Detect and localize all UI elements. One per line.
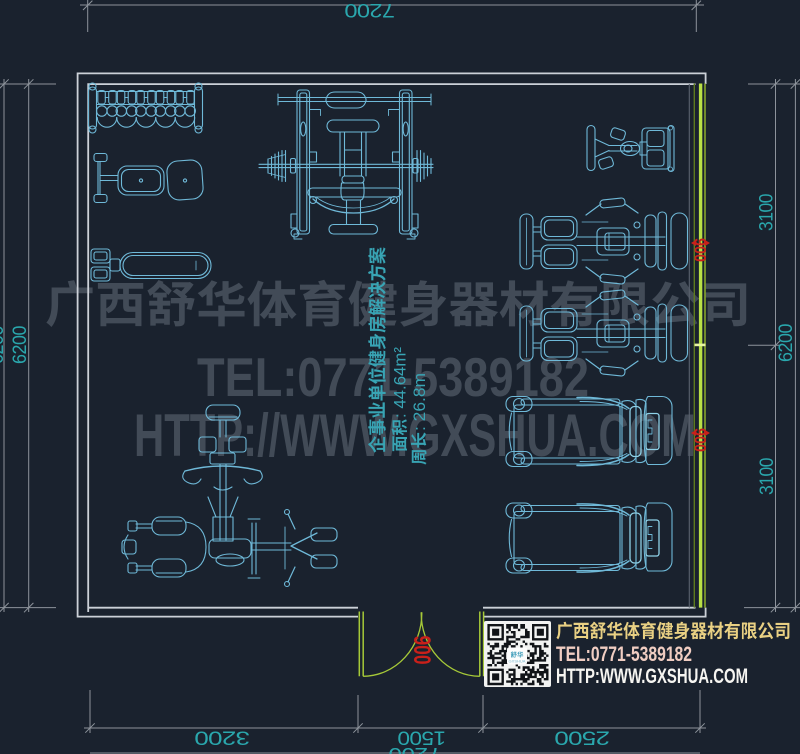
svg-text:3100: 3100 [757,194,778,231]
svg-text:7200: 7200 [345,0,395,20]
svg-text:6200: 6200 [776,324,797,362]
svg-text:: 26.8m: : 26.8m [411,373,429,431]
svg-text:TEL:0771-5389182: TEL:0771-5389182 [556,643,692,666]
svg-text:3100: 3100 [757,458,778,495]
svg-text:2500: 2500 [555,727,610,748]
svg-text:3200: 3200 [195,727,250,748]
svg-text:GXSHUA: GXSHUA [509,659,526,664]
svg-text:6200: 6200 [0,326,8,364]
svg-text:HTTP:WWW.GXSHUA.COM: HTTP:WWW.GXSHUA.COM [556,665,748,688]
svg-text:6200: 6200 [10,326,31,364]
svg-text:: 44.64m²: : 44.64m² [392,346,410,418]
svg-text:7200: 7200 [389,743,441,754]
svg-text:900: 900 [408,636,435,665]
